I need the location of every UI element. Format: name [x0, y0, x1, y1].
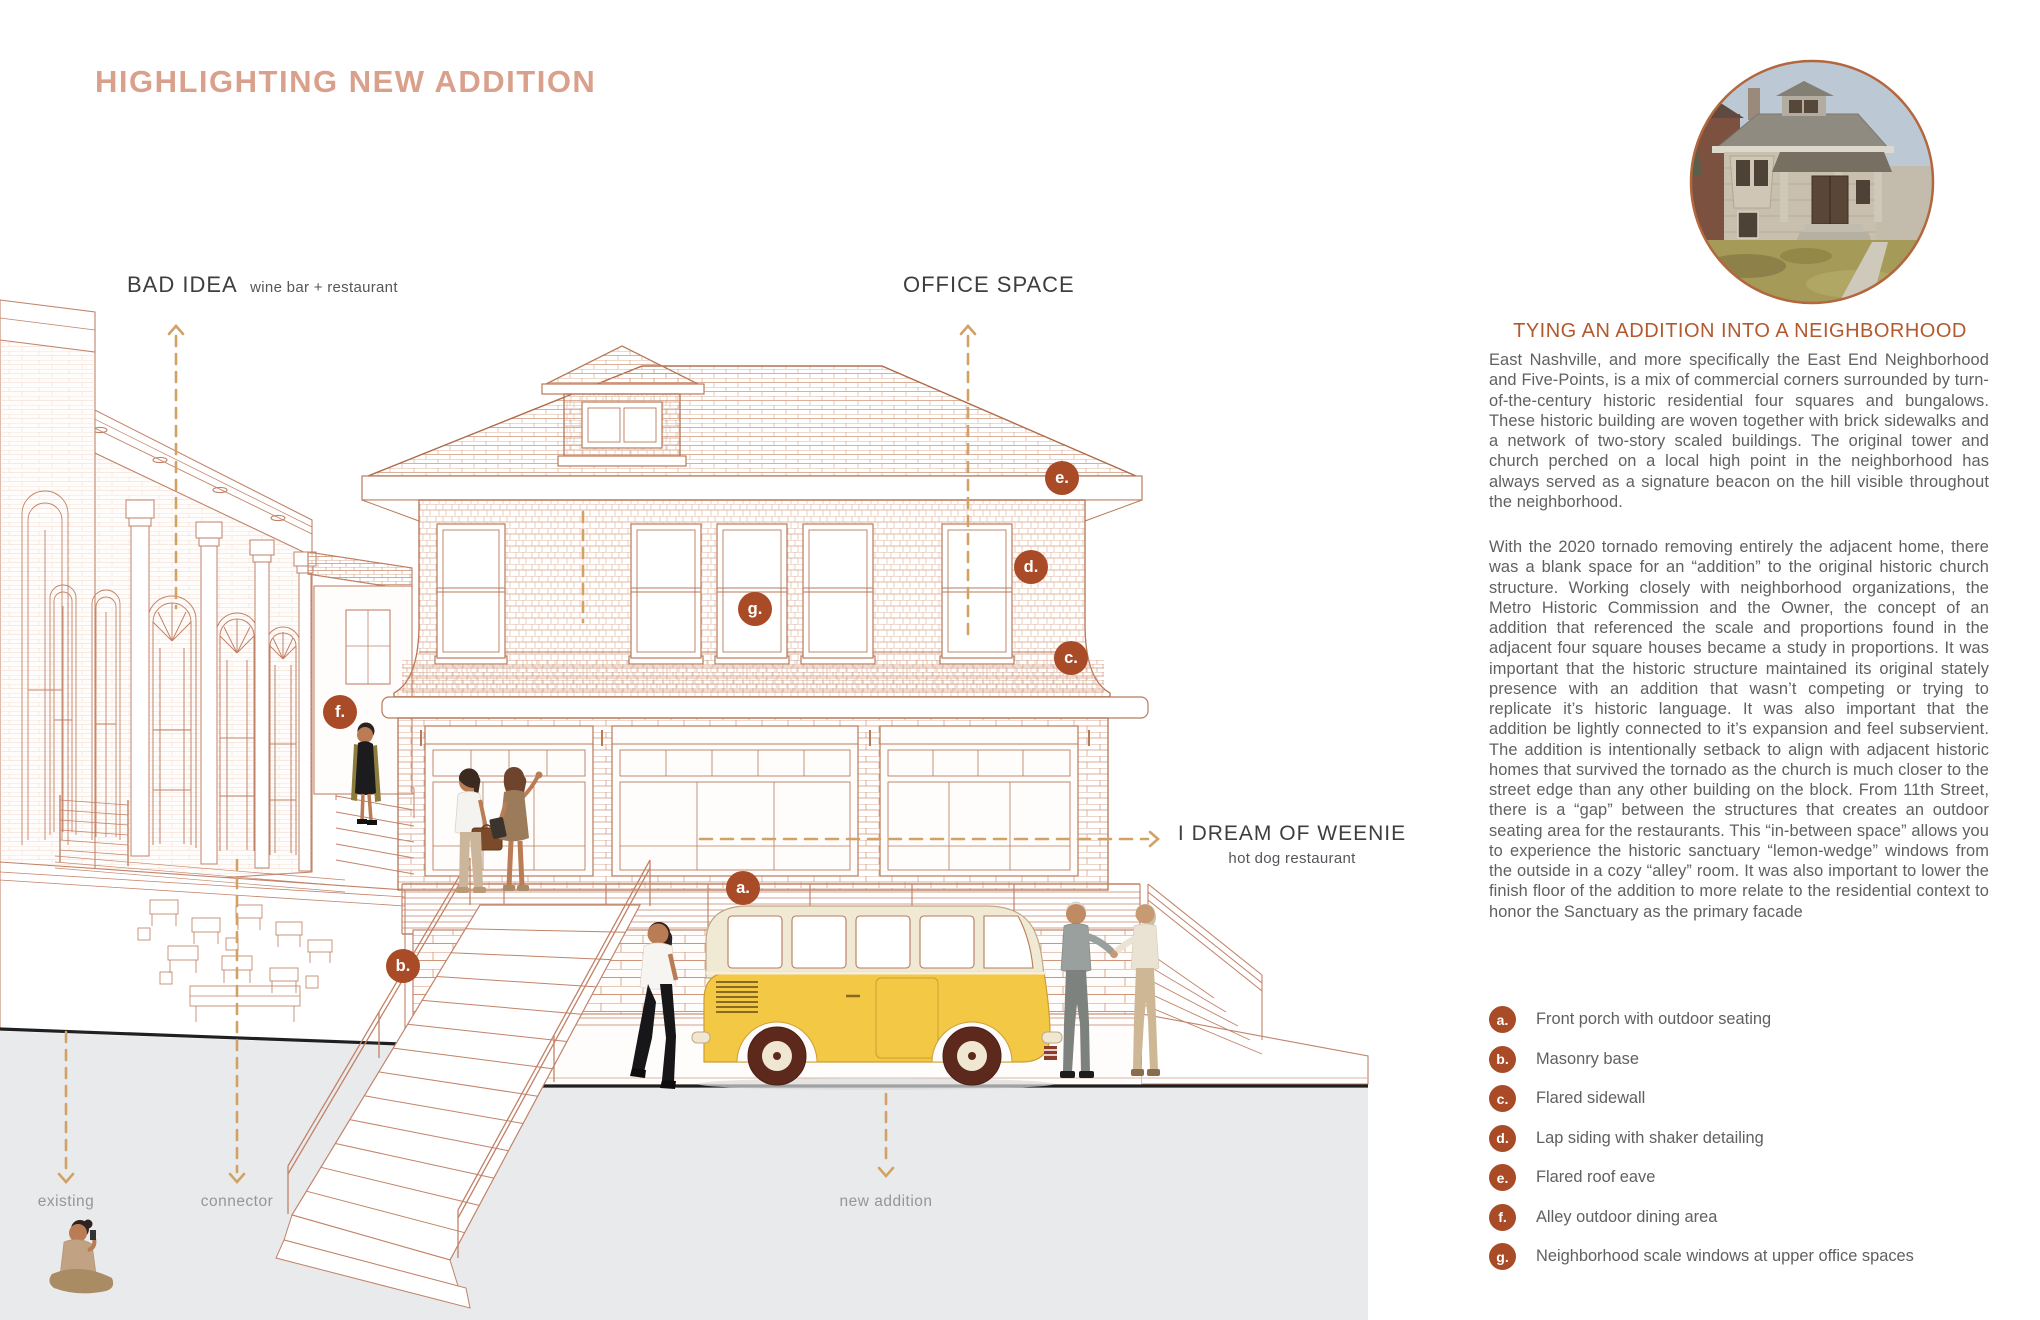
callout-d: d.: [1014, 550, 1048, 584]
legend-letter-badge: a.: [1489, 1006, 1516, 1033]
callout-c: c.: [1054, 641, 1088, 675]
label-existing: existing: [16, 1193, 116, 1211]
legend-letter-badge: c.: [1489, 1085, 1516, 1112]
legend-label: Front porch with outdoor seating: [1536, 1010, 1771, 1029]
legend-item: a.Front porch with outdoor seating: [1489, 1006, 2009, 1033]
legend-list: a.Front porch with outdoor seatingb.Maso…: [1489, 1006, 2009, 1283]
existing-church: [0, 300, 414, 1044]
label-weenie: I DREAM OF WEENIE hot dog restaurant: [1172, 822, 1412, 867]
legend-label: Flared sidewall: [1536, 1089, 1645, 1108]
legend-label: Masonry base: [1536, 1050, 1639, 1069]
callout-a: a.: [726, 871, 760, 905]
vw-bus: [692, 906, 1062, 1090]
legend-label: Alley outdoor dining area: [1536, 1208, 1717, 1227]
dormer: [542, 346, 704, 466]
label-office-space: OFFICE SPACE: [903, 272, 1075, 298]
weenie-desc: hot dog restaurant: [1172, 850, 1412, 867]
column-heading: TYING AN ADDITION INTO A NEIGHBORHOOD: [1486, 320, 1994, 343]
label-bad-idea: BAD IDEA wine bar + restaurant: [127, 272, 398, 298]
legend-letter-badge: d.: [1489, 1125, 1516, 1152]
callout-g: g.: [738, 592, 772, 626]
office-space-text: OFFICE SPACE: [903, 272, 1075, 297]
callout-b: b.: [386, 949, 420, 983]
column-body: East Nashville, and more specifically th…: [1489, 350, 1989, 947]
neighborhood-photo: [1686, 56, 1938, 308]
legend-letter-badge: b.: [1489, 1046, 1516, 1073]
legend-label: Neighborhood scale windows at upper offi…: [1536, 1247, 1914, 1266]
legend-label: Lap siding with shaker detailing: [1536, 1129, 1764, 1148]
page-title: HIGHLIGHTING NEW ADDITION: [95, 64, 596, 100]
weenie-name: I DREAM OF WEENIE: [1178, 822, 1406, 845]
bad-idea-name: BAD IDEA: [127, 272, 238, 297]
paragraph-1: East Nashville, and more specifically th…: [1489, 350, 1989, 512]
label-new-addition: new addition: [821, 1193, 951, 1211]
label-connector: connector: [182, 1193, 292, 1211]
legend-item: f.Alley outdoor dining area: [1489, 1204, 2009, 1231]
legend-item: d.Lap siding with shaker detailing: [1489, 1125, 2009, 1152]
legend-item: e.Flared roof eave: [1489, 1164, 2009, 1191]
bad-idea-desc: wine bar + restaurant: [250, 279, 398, 296]
legend-item: g.Neighborhood scale windows at upper of…: [1489, 1243, 2009, 1270]
legend-item: c.Flared sidewall: [1489, 1085, 2009, 1112]
paragraph-2: With the 2020 tornado removing entirely …: [1489, 537, 1989, 922]
legend-letter-badge: g.: [1489, 1243, 1516, 1270]
presentation-page: a.b.c.d.e.f.g. HIGHLIGHTING NEW ADDITION…: [0, 0, 2040, 1320]
callout-e: e.: [1045, 461, 1079, 495]
legend-letter-badge: f.: [1489, 1204, 1516, 1231]
neighborhood-photo-image: [1686, 56, 1938, 308]
legend-letter-badge: e.: [1489, 1164, 1516, 1191]
legend-label: Flared roof eave: [1536, 1168, 1655, 1187]
legend-item: b.Masonry base: [1489, 1046, 2009, 1073]
callout-f: f.: [323, 695, 357, 729]
